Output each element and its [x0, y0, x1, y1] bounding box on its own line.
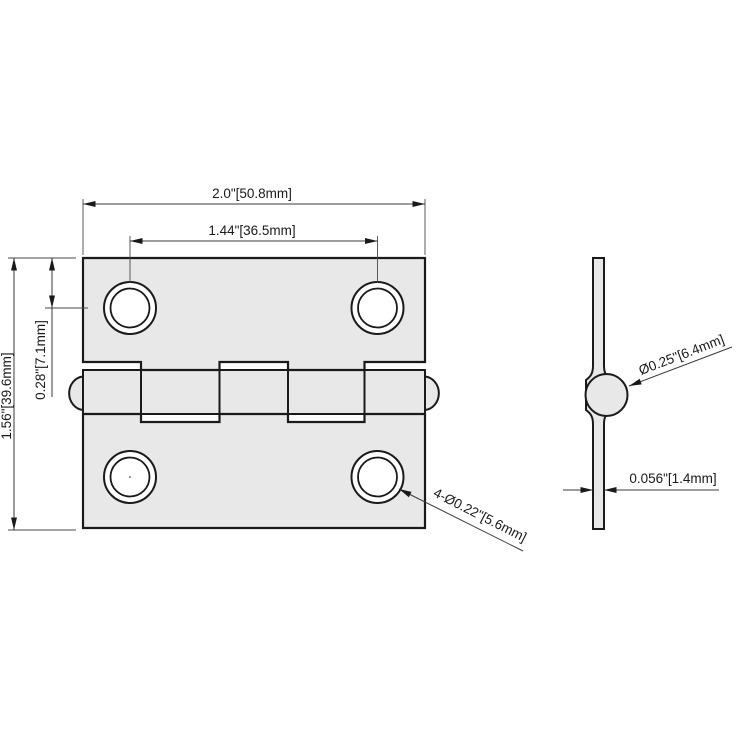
dim-overall-height-label: 1.56"[39.6mm] [0, 352, 14, 439]
dim-leaf-thickness: 0.056"[1.4mm] [563, 471, 719, 490]
dim-hole-spacing-label: 1.44"[36.5mm] [208, 223, 295, 238]
callout-hole-diameter-label: 4-Ø0.22"[5.6mm] [431, 485, 529, 545]
side-view: Ø0.25"[6.4mm] 0.056"[1.4mm] [563, 258, 732, 529]
dim-overall-width: 2.0"[50.8mm] [83, 186, 425, 255]
screw-hole-bottom-right [352, 451, 404, 503]
drawing-canvas: 2.0"[50.8mm] 1.44"[36.5mm] 1.56"[39.6mm]… [0, 0, 736, 736]
knuckle-circle [586, 374, 628, 416]
screw-hole-top-right [352, 282, 404, 334]
screw-hole-bottom-left [104, 451, 156, 503]
hole-center-mark [129, 476, 131, 478]
dim-hole-offset-label: 0.28"[7.1mm] [33, 320, 48, 400]
front-view: 2.0"[50.8mm] 1.44"[36.5mm] 1.56"[39.6mm]… [0, 186, 529, 551]
barrel-cap-left [69, 377, 83, 411]
callout-knuckle-diameter: Ø0.25"[6.4mm] [629, 332, 732, 386]
hinge-technical-drawing: 2.0"[50.8mm] 1.44"[36.5mm] 1.56"[39.6mm]… [0, 0, 736, 736]
dim-leaf-thickness-label: 0.056"[1.4mm] [629, 471, 716, 486]
barrel-strip [83, 370, 425, 414]
barrel-cap-right [425, 377, 439, 411]
screw-hole-top-left [104, 282, 156, 334]
dim-overall-width-label: 2.0"[50.8mm] [212, 186, 292, 201]
